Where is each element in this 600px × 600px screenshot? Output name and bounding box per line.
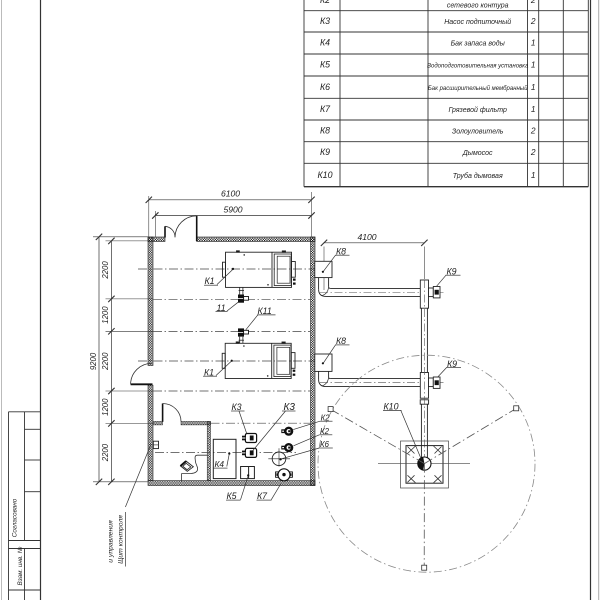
svg-text:1: 1 <box>531 104 536 114</box>
svg-text:Согласовано: Согласовано <box>12 498 19 537</box>
svg-text:2200: 2200 <box>101 443 110 462</box>
svg-text:К4: К4 <box>320 38 330 48</box>
svg-text:и управления: и управления <box>108 520 115 563</box>
svg-text:К7: К7 <box>320 104 331 114</box>
svg-text:К2: К2 <box>320 0 330 5</box>
svg-text:Щит контроля: Щит контроля <box>118 515 125 564</box>
svg-text:К3: К3 <box>320 16 330 26</box>
svg-text:К6: К6 <box>320 82 330 92</box>
svg-text:1: 1 <box>531 60 536 70</box>
svg-text:5900: 5900 <box>223 205 242 215</box>
svg-text:К5: К5 <box>227 491 237 501</box>
svg-text:4100: 4100 <box>357 232 376 242</box>
svg-text:Бак расширительный мембранный: Бак расширительный мембранный <box>428 85 528 92</box>
svg-text:2: 2 <box>530 126 536 136</box>
svg-text:2200: 2200 <box>101 352 110 371</box>
svg-text:Водоподготовительная установка: Водоподготовительная установка <box>427 64 529 70</box>
svg-text:6100: 6100 <box>221 189 240 199</box>
svg-text:К11: К11 <box>258 306 272 316</box>
svg-text:Грязевой фильтр: Грязевой фильтр <box>449 106 507 114</box>
svg-text:сетевого контура: сетевого контура <box>447 3 509 10</box>
svg-text:К8: К8 <box>320 126 330 136</box>
svg-text:1: 1 <box>531 170 536 180</box>
svg-text:Дымосос: Дымосос <box>462 150 493 157</box>
svg-text:1: 1 <box>531 38 536 48</box>
svg-text:1200: 1200 <box>101 398 110 416</box>
svg-text:К4: К4 <box>215 459 225 469</box>
svg-text:Труба дымовая: Труба дымовая <box>453 172 503 180</box>
svg-text:2200: 2200 <box>101 261 110 280</box>
svg-text:К9: К9 <box>320 147 330 157</box>
svg-text:Взам. инв. №: Взам. инв. № <box>17 546 24 585</box>
svg-text:К1: К1 <box>205 276 215 286</box>
svg-text:Бак запаса воды: Бак запаса воды <box>451 40 506 48</box>
svg-text:Золоуловитель: Золоуловитель <box>452 129 504 136</box>
svg-text:К5: К5 <box>320 60 330 70</box>
svg-text:1200: 1200 <box>101 306 110 324</box>
svg-text:К7: К7 <box>257 491 268 501</box>
svg-text:2: 2 <box>530 16 536 26</box>
svg-text:1: 1 <box>531 82 536 92</box>
svg-text:К10: К10 <box>318 170 333 180</box>
svg-text:2: 2 <box>530 0 536 5</box>
svg-text:2: 2 <box>530 147 536 157</box>
svg-text:Насос подпиточный: Насос подпиточный <box>444 18 511 26</box>
svg-text:9200: 9200 <box>89 352 98 370</box>
